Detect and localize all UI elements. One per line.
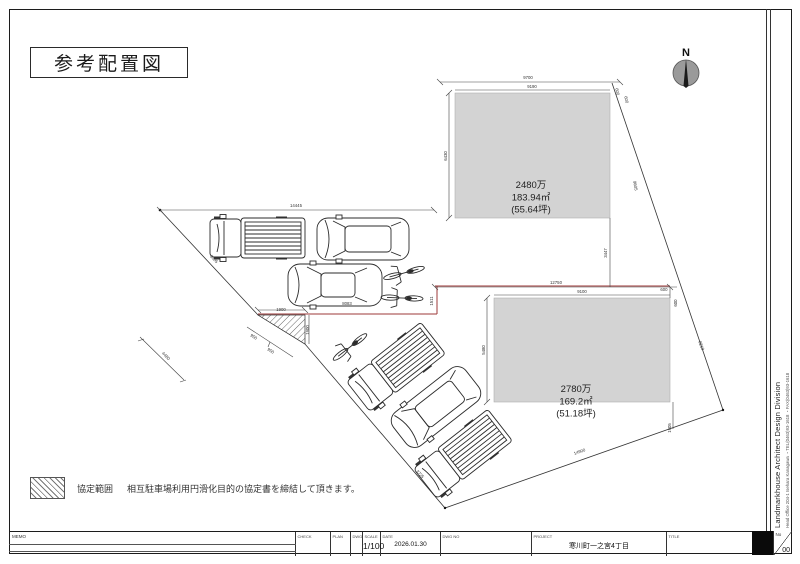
cell-check: CHECK — [296, 532, 331, 556]
sidebar-divider — [766, 9, 767, 531]
memo-field: MEMO — [9, 532, 296, 556]
company-name: Landmarkhouse Architect Design Division — [773, 382, 782, 528]
cell-project: PROJECT 寒川町一之宮4丁目 — [532, 532, 667, 556]
sheet-no-label: No — [776, 532, 782, 537]
sheet-no-value: 00 — [782, 547, 790, 554]
memo-rule-line — [9, 544, 296, 545]
date-value: 2026.01.30 — [381, 541, 440, 548]
page-border — [9, 9, 792, 554]
scale-value: 1/100 — [363, 541, 380, 551]
sidebar-divider — [770, 9, 771, 531]
drawing-title-box: 参考配置図 — [30, 47, 188, 78]
cell-dwg: DWG. — [351, 532, 363, 556]
cell-dwgno: DWG NO — [441, 532, 532, 556]
agreement-legend: 協定範囲 相互駐車場利用円滑化目的の協定書を締結して頂きます。 — [30, 477, 360, 499]
memo-rule-line — [9, 551, 296, 552]
cell-date: DATE 2026.01.30 — [381, 532, 441, 556]
company-address: Head Office 204-1 Isehara Kanagawa ・TEL(… — [785, 373, 791, 528]
legend-label: 協定範囲 — [77, 482, 113, 495]
memo-label: MEMO — [12, 534, 26, 539]
stamp-black-box — [752, 531, 773, 555]
cell-scale: SCALE 1/100 — [363, 532, 381, 556]
sheet-number-box: No 00 — [773, 531, 792, 555]
project-value: 寒川町一之宮4丁目 — [532, 541, 666, 551]
cell-plan: PLAN — [331, 532, 351, 556]
hatch-swatch-icon — [30, 477, 65, 499]
page-title: 参考配置図 — [54, 49, 164, 76]
title-block: MEMO CHECK PLAN DWG. SCALE 1/100 DATE 20… — [9, 531, 752, 555]
cell-title: TITLE — [667, 532, 761, 556]
drawing-sheet: N 2480万183.94㎡(55.64坪)2780万169.2㎡(51.18坪… — [0, 0, 800, 564]
legend-text: 相互駐車場利用円滑化目的の協定書を締結して頂きます。 — [127, 482, 360, 495]
